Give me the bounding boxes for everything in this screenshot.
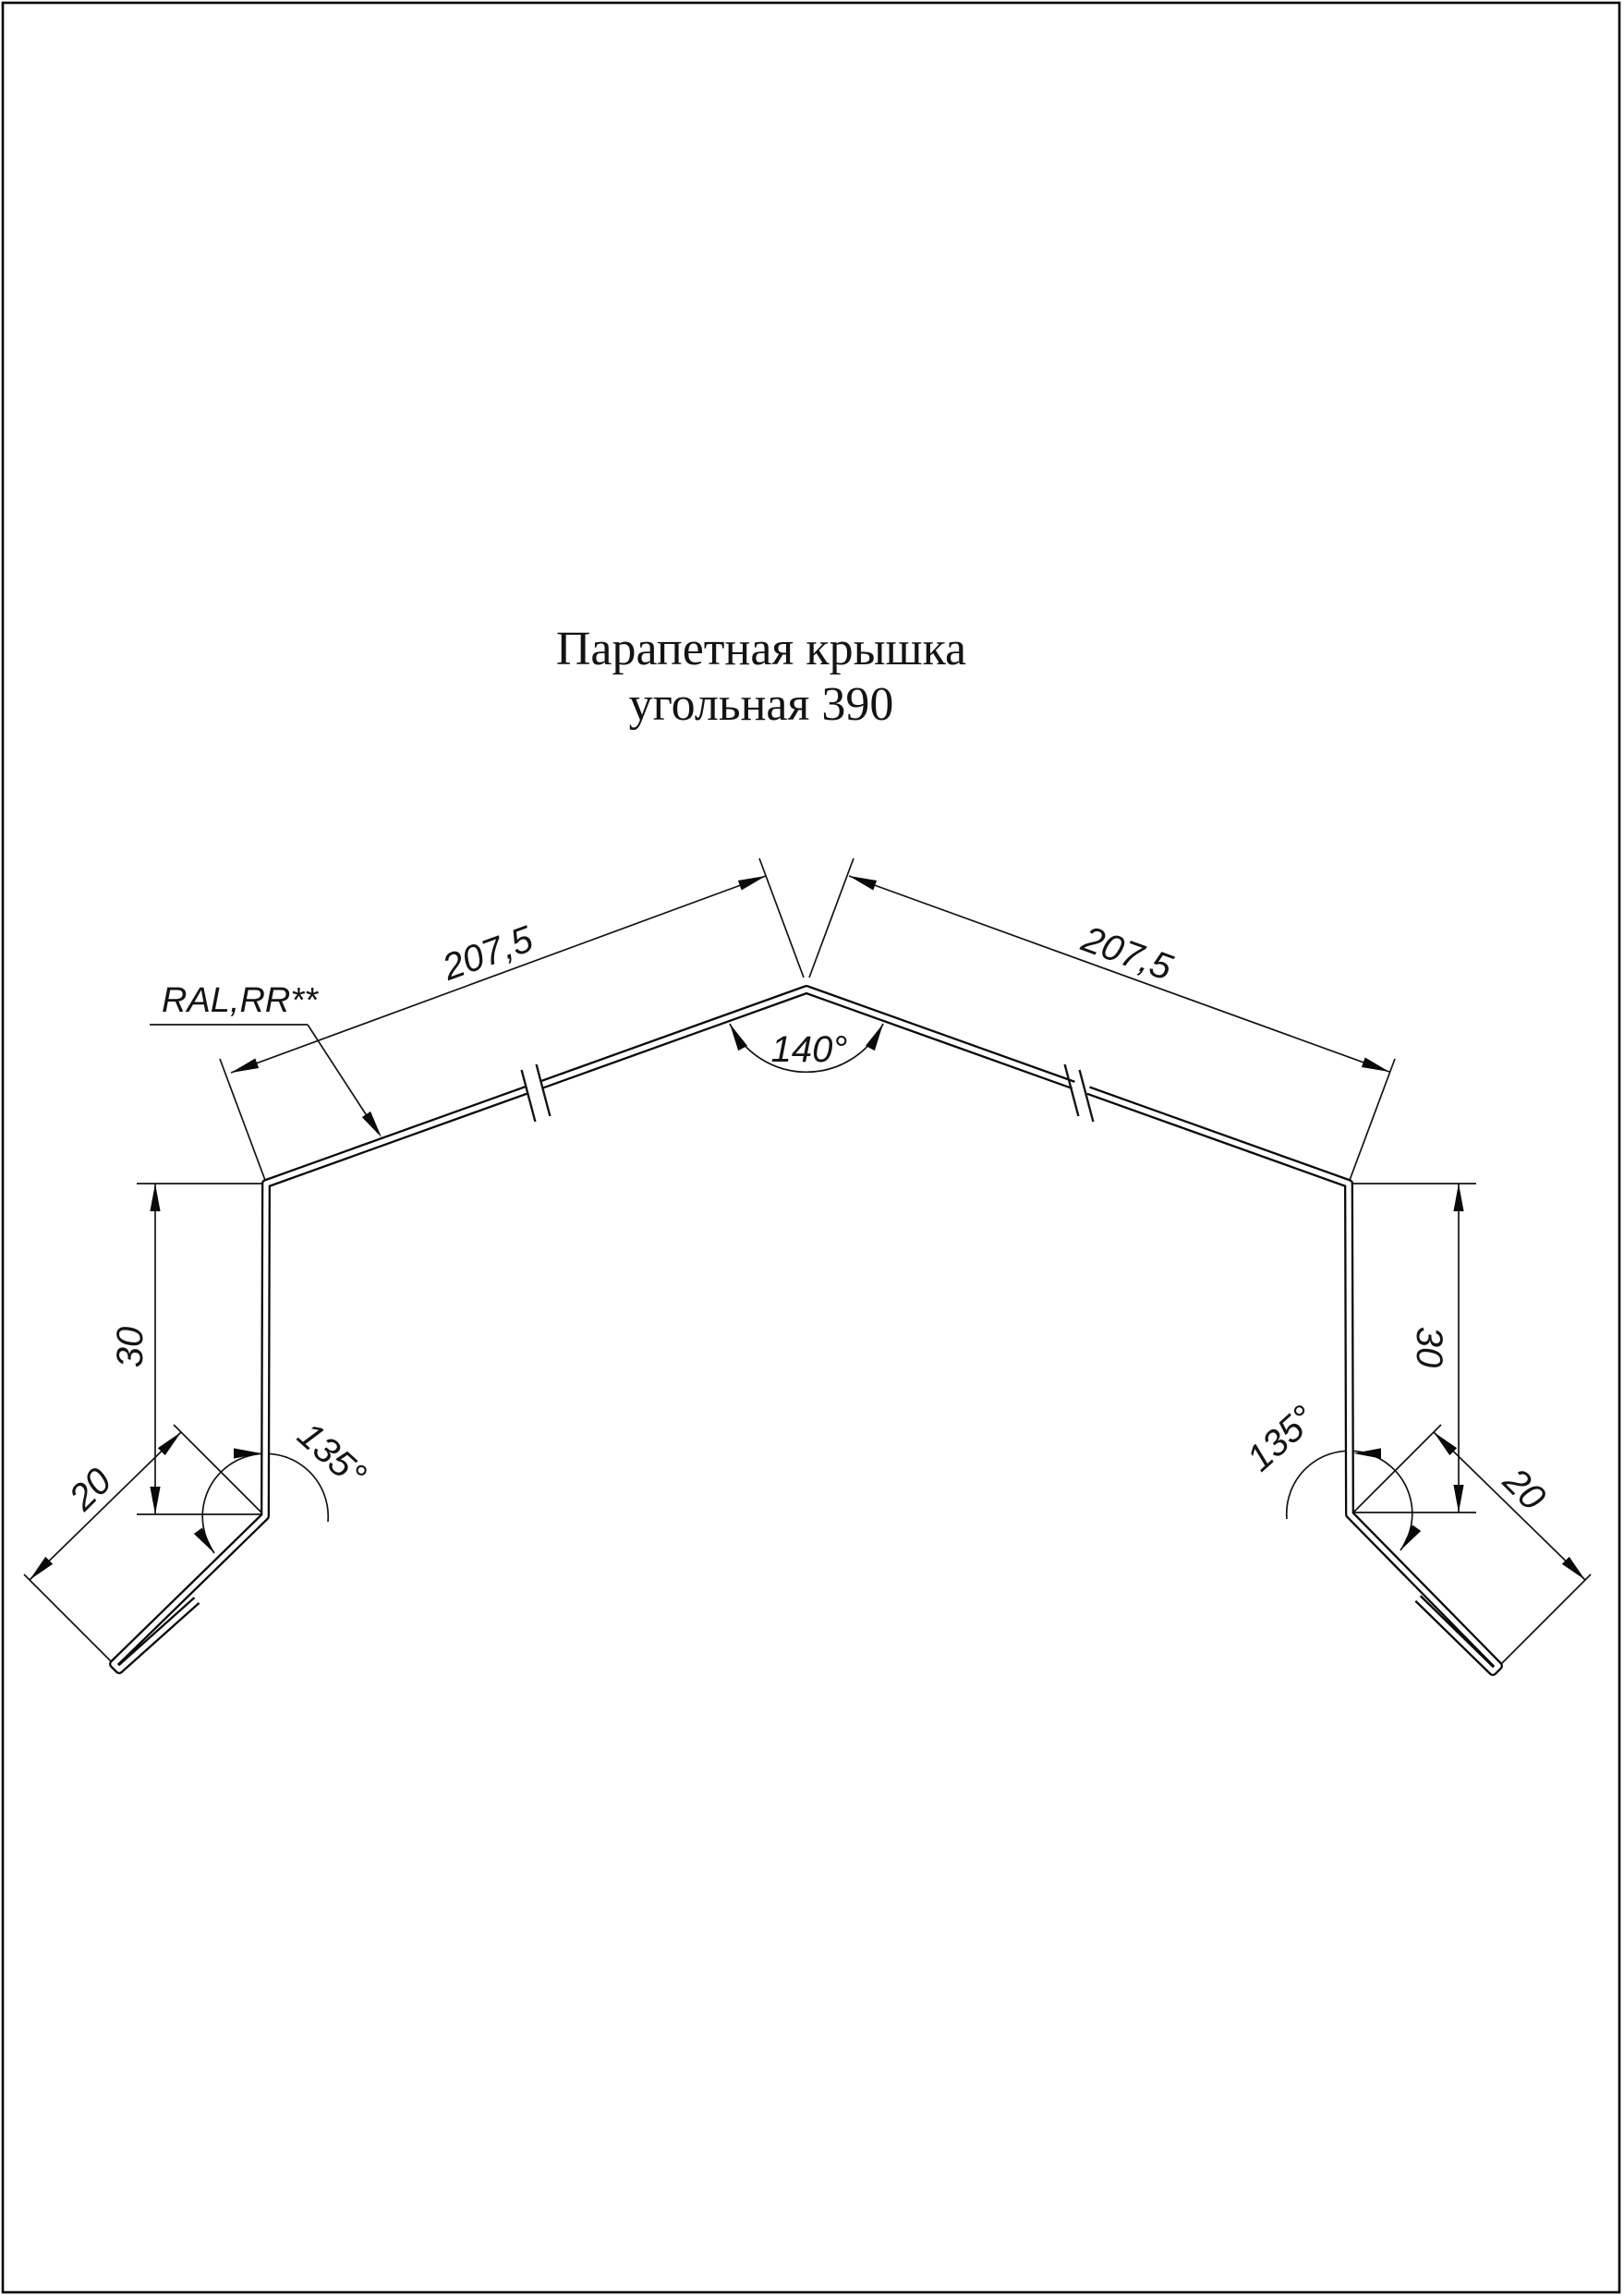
dim-web-left: 30 xyxy=(110,1327,151,1368)
title-block: Парапетная крышка угольная 390 xyxy=(556,623,966,731)
arrowheads xyxy=(26,871,1589,1584)
arrow-slope-right-high xyxy=(847,871,877,891)
dim-web-right: 30 xyxy=(1409,1327,1449,1368)
right-slope-dim-line xyxy=(849,876,1389,1072)
arrow-apex-angle-left xyxy=(725,1021,747,1051)
dim-apex-angle: 140° xyxy=(771,1029,848,1070)
dim-slope-right: 207,5 xyxy=(1076,918,1179,989)
right-flange-dim-line xyxy=(1434,1432,1585,1580)
arrow-web-right-bottom xyxy=(1453,1485,1463,1512)
left-break-gap xyxy=(528,1090,543,1096)
dim-flange-right: 20 xyxy=(1495,1460,1553,1518)
arrow-ral-leader xyxy=(362,1112,386,1140)
arrow-flange-right-top xyxy=(1430,1428,1457,1455)
break-marks xyxy=(522,1064,1094,1122)
dim-flange-left: 20 xyxy=(61,1461,119,1519)
arrow-bend-right-web xyxy=(1353,1448,1381,1458)
left-shoulder-extension xyxy=(220,1059,266,1183)
arrow-web-left-bottom xyxy=(150,1487,160,1514)
drawing-sheet: Парапетная крышка угольная 390 RAL,RR** … xyxy=(0,0,1624,2296)
arrow-bend-right-flange xyxy=(1396,1525,1421,1553)
dimension-lines xyxy=(24,858,1591,1669)
left-flange-ext-2 xyxy=(24,1574,118,1669)
right-flange-ext-2 xyxy=(1497,1574,1591,1669)
arrow-flange-left-top xyxy=(158,1428,185,1455)
arrow-web-left-top xyxy=(150,1184,160,1211)
arrow-apex-angle-right xyxy=(866,1021,888,1051)
arrow-slope-left-high xyxy=(738,871,768,891)
left-slope-dim-line xyxy=(231,876,766,1073)
material-label: RAL,RR** xyxy=(162,981,319,1020)
left-flange-dim-line xyxy=(30,1432,181,1580)
sheet-border xyxy=(3,3,1619,2292)
profile-metal-outer xyxy=(114,990,1498,1671)
profile-metal-core xyxy=(114,990,1498,1671)
dimension-labels: RAL,RR** 207,5 207,5 140° 30 30 20 20 13… xyxy=(61,918,1553,1519)
apex-extension-right xyxy=(809,858,854,978)
arrow-flange-right-end xyxy=(1562,1557,1589,1584)
dim-bend-angle-right: 135° xyxy=(1240,1398,1324,1479)
apex-extension-left xyxy=(759,858,804,978)
title-line-2: угольная 390 xyxy=(629,678,894,731)
dim-bend-angle-left: 135° xyxy=(290,1415,374,1496)
right-flange-ext-1 xyxy=(1353,1425,1441,1512)
title-line-1: Парапетная крышка xyxy=(556,623,966,675)
arrow-bend-left-flange xyxy=(194,1527,219,1556)
technical-drawing: Парапетная крышка угольная 390 RAL,RR** … xyxy=(0,0,1624,2296)
arrow-flange-left-end xyxy=(26,1557,53,1584)
arrow-slope-right-low xyxy=(1362,1058,1391,1077)
arrow-web-right-top xyxy=(1453,1184,1463,1211)
arrow-slope-left-low xyxy=(229,1059,259,1078)
left-flange-ext-1 xyxy=(174,1425,261,1512)
right-shoulder-extension xyxy=(1349,1059,1395,1183)
profile-outline xyxy=(114,990,1498,1671)
